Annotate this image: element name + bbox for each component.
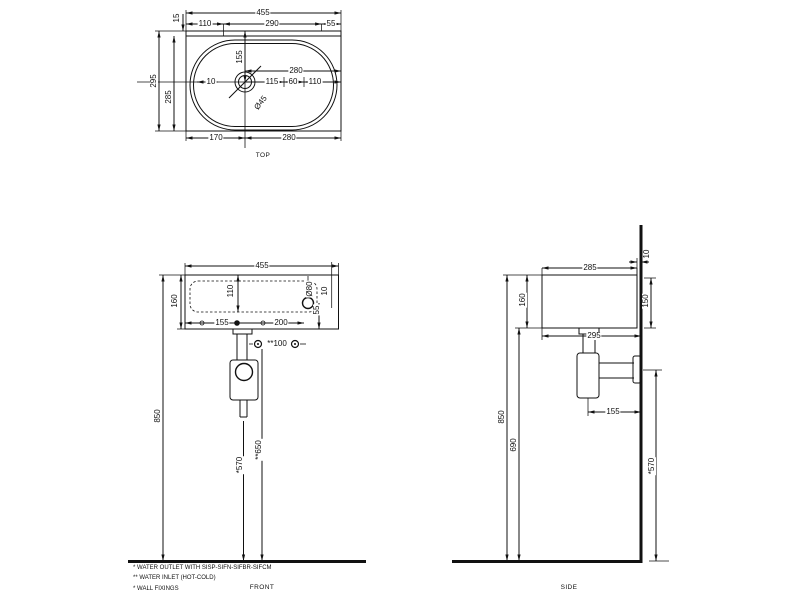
technical-drawing-canvas bbox=[0, 0, 800, 600]
dim-label-side: 690 bbox=[510, 437, 518, 452]
dim-label-top: 10 bbox=[206, 78, 217, 86]
dim-label-side: 155 bbox=[605, 408, 620, 416]
dim-label-top: 110 bbox=[308, 78, 323, 86]
dim-label-top: 290 bbox=[264, 20, 279, 28]
dim-label-side: 285 bbox=[582, 264, 597, 272]
view-title-top: TOP bbox=[256, 153, 270, 160]
dim-label-side: *570 bbox=[648, 457, 656, 475]
dim-label-side: 10 bbox=[643, 249, 651, 260]
dim-label-front: Ø80 bbox=[306, 280, 314, 297]
footnote-3: * WALL FIXINGS bbox=[133, 586, 179, 592]
footnote-2: ** WATER INLET (HOT-COLD) bbox=[133, 575, 216, 581]
dim-label-top: 155 bbox=[236, 49, 244, 64]
dim-label-top: 170 bbox=[208, 134, 223, 142]
dim-label-front: 10 bbox=[321, 286, 329, 297]
dim-label-side: 295 bbox=[586, 332, 601, 340]
dim-label-top: 110 bbox=[198, 20, 213, 28]
dim-label-front: *570 bbox=[236, 456, 244, 474]
dim-label-top: 55 bbox=[326, 20, 337, 28]
dim-label-front: 160 bbox=[171, 293, 179, 308]
footnote-1: * WATER OUTLET WITH SISP-SIFN-SIFBR-SIFC… bbox=[133, 565, 272, 571]
dim-label-top: 15 bbox=[173, 13, 181, 24]
side-dimension-lines bbox=[507, 262, 656, 561]
dim-label-top: 295 bbox=[150, 73, 158, 88]
dim-label-side: 150 bbox=[642, 293, 650, 308]
dim-label-top: 280 bbox=[281, 134, 296, 142]
dim-label-top: 60 bbox=[288, 78, 299, 86]
dim-label-top: 115 bbox=[265, 78, 280, 86]
dim-label-top: 455 bbox=[255, 9, 270, 17]
dim-label-front: **100 bbox=[266, 340, 288, 348]
view-title-side: SIDE bbox=[561, 585, 578, 592]
water-inlet-center bbox=[257, 343, 259, 345]
view-title-front: FRONT bbox=[250, 585, 274, 592]
hidden-bowl-outline bbox=[190, 281, 317, 312]
dim-label-top: 285 bbox=[165, 89, 173, 104]
dim-label-front: 55 bbox=[313, 305, 321, 316]
drawing-sheet: 45515110290552952851015528011560110Ø4517… bbox=[0, 0, 800, 600]
dim-label-front: 200 bbox=[273, 319, 288, 327]
trap-bottle-side bbox=[577, 353, 599, 398]
dim-label-side: 160 bbox=[519, 292, 527, 307]
front-view-linework bbox=[128, 262, 366, 562]
dim-label-side: 850 bbox=[498, 409, 506, 424]
water-inlet-center bbox=[294, 343, 296, 345]
trap-nut-circle bbox=[236, 364, 253, 381]
side-view-linework bbox=[452, 225, 669, 562]
dim-label-front: 850 bbox=[154, 408, 162, 423]
dim-label-front: 455 bbox=[254, 262, 269, 270]
basin-body-side bbox=[542, 275, 637, 328]
dim-label-front: 110 bbox=[227, 284, 235, 299]
dim-label-front: **650 bbox=[255, 439, 263, 461]
dim-label-front: 155 bbox=[214, 319, 229, 327]
basin-body-front bbox=[185, 275, 339, 329]
drain-flange bbox=[233, 329, 252, 334]
dim-label-top: 280 bbox=[288, 67, 303, 75]
